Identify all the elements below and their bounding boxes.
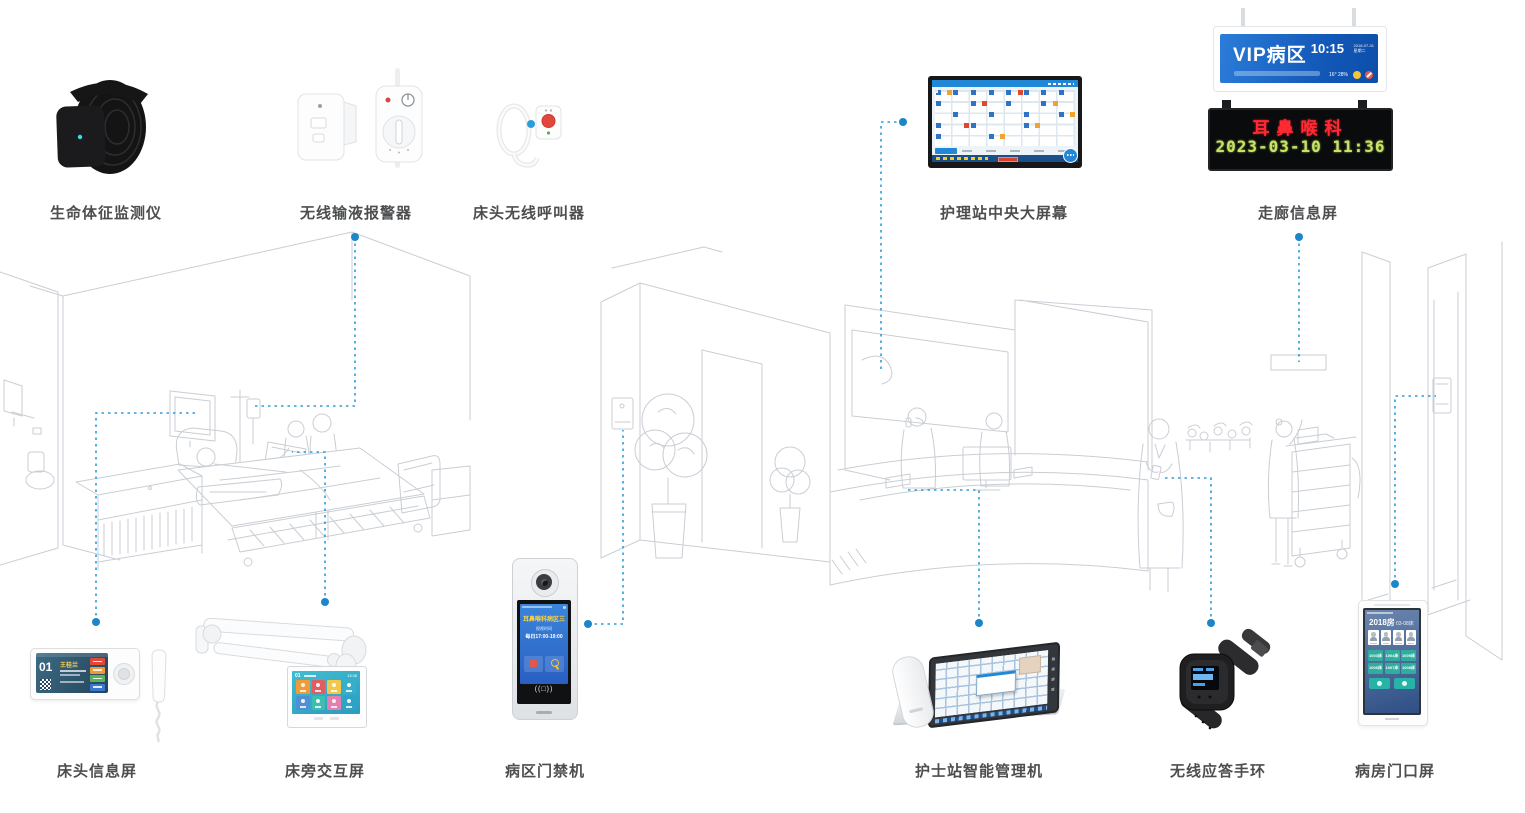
vip-sign-subtitle-bar (1234, 71, 1320, 76)
visitor-button (1394, 678, 1415, 689)
console-screen (935, 650, 1048, 717)
call-tile-blue (90, 684, 105, 691)
humidity-value: 28 (1338, 72, 1344, 78)
app-tile-education (312, 696, 326, 710)
door-screen-buttons (1368, 678, 1416, 689)
bed-range: 03-08床 (1396, 620, 1414, 627)
bedside-info-display: 01 王桂兰 (36, 653, 108, 693)
staff-photo-row (1368, 630, 1416, 645)
visitor-register-tile (524, 656, 543, 672)
label-nurse-console: 护士站智能管理机 (849, 760, 1109, 781)
bed-card-badges (935, 90, 938, 93)
gear-icon (563, 606, 566, 609)
temperature-value: 16 (1329, 72, 1335, 78)
unlock-tile (545, 656, 564, 672)
led-datetime-text: 2023-03-10 11:36 (1210, 137, 1391, 156)
wristband-device (1177, 626, 1272, 731)
card-slot (536, 711, 552, 714)
statusbar-ticker (936, 157, 988, 160)
console-popup (976, 670, 1016, 696)
label-bedside-caller: 床头无线呼叫器 (399, 202, 659, 223)
bezel-button (314, 717, 323, 720)
ellipsis-icon (1067, 154, 1074, 156)
app-tile-grid (296, 680, 356, 710)
call-tile-orange (90, 667, 105, 674)
bed-tile: 1008床 (1401, 663, 1416, 674)
no-smoking-icon (1365, 71, 1373, 79)
patient-name: 王桂兰 (60, 660, 78, 669)
app-tile-phone (343, 680, 357, 694)
info-line (60, 674, 80, 676)
door-screen-topbar (1367, 612, 1393, 614)
door-screen-display: 2018房 03-08床 1003床 1004床 1005床 1006床 100… (1365, 610, 1419, 713)
call-tile-green (90, 675, 105, 682)
bed-tile: 1003床 (1368, 650, 1383, 661)
bedside-handset (152, 650, 166, 742)
monitor-led (78, 135, 82, 139)
bezel-button (330, 717, 339, 720)
smiley-icon (1353, 71, 1361, 79)
interactive-name-bar (304, 675, 316, 677)
vip-sign-time: 10:15 (1311, 41, 1344, 56)
call-button (542, 115, 555, 128)
staff-photo (1381, 630, 1392, 645)
camera-button (1369, 678, 1390, 689)
staff-photo (1393, 630, 1404, 645)
access-ward-title: 耳鼻喉科病区三 (520, 614, 568, 623)
caller-cord-plug (527, 120, 535, 128)
app-tile-orders (296, 680, 310, 694)
info-line (60, 670, 86, 672)
hospital-iot-diagram: VIP病区 10:15 2018-07-31 星期二 16° 28% 耳鼻喉科 … (0, 0, 1525, 813)
corridor-led-device: 耳鼻喉科 2023-03-10 11:36 (1208, 108, 1393, 171)
bed-tile-grid: 1003床 1004床 1005床 1006床 1007床 1008床 (1368, 650, 1416, 674)
interactive-time: 13:36 (347, 673, 357, 678)
bed-number: 01 (39, 660, 52, 674)
app-tile-media (296, 696, 310, 710)
access-topbar (522, 606, 552, 608)
header-text-dashes (1048, 83, 1074, 85)
vip-sign-date: 2018-07-31 星期二 (1354, 43, 1374, 53)
visit-time-label: 探视时间 (520, 626, 568, 632)
more-button (1063, 148, 1078, 163)
door-screen-logo (1385, 718, 1399, 720)
bedside-info-knob (113, 663, 135, 685)
label-ward-access: 病区门禁机 (415, 760, 675, 781)
central-screen-header (932, 80, 1078, 87)
access-screen: 耳鼻喉科病区三 探视时间 每日17:00-19:00 (520, 604, 568, 684)
label-vital-monitor: 生命体征监测仪 (0, 202, 236, 223)
bed-card-grid (935, 90, 1075, 146)
vital-monitor-device (56, 80, 148, 174)
inactive-tabs (962, 150, 1072, 152)
active-tab (935, 148, 957, 154)
bedside-caller-device (499, 106, 561, 165)
label-central-screen: 护理站中央大屏幕 (874, 202, 1134, 223)
app-tile-settings (343, 696, 357, 710)
interactive-bed-number: 01 (295, 673, 301, 679)
staff-photo (1368, 630, 1379, 645)
qr-code (40, 679, 51, 690)
app-tile-vitals (312, 680, 326, 694)
label-door-screen: 病房门口屏 (1265, 760, 1525, 781)
bed-tile: 1006床 (1368, 663, 1383, 674)
bedside-info-topbar (36, 653, 108, 657)
access-camera (531, 569, 559, 597)
staff-photo (1406, 630, 1417, 645)
console-video-tile (1019, 655, 1041, 675)
vip-sign-climate: 16° 28% (1329, 72, 1348, 78)
bed-tile: 1005床 (1401, 650, 1416, 661)
vip-weekday-line: 星期二 (1354, 48, 1366, 53)
visit-time-value: 每日17:00-19:00 (520, 633, 568, 640)
app-tile-bill (327, 680, 341, 694)
interactive-screen-display: 01 13:36 (292, 671, 360, 714)
vip-sign-screen: VIP病区 10:15 2018-07-31 星期二 16° 28% (1220, 34, 1378, 83)
info-line (60, 681, 84, 683)
bed-tile: 1004床 (1385, 650, 1400, 661)
label-corridor-screen: 走廊信息屏 (1168, 202, 1428, 223)
app-tile-meals (327, 696, 341, 710)
bed-tile: 1007床 (1385, 663, 1400, 674)
door-screen-speaker (1374, 604, 1410, 606)
vip-sign-title: VIP病区 (1233, 40, 1307, 67)
console-indicator-lights (1051, 656, 1055, 691)
nfc-symbol: ((□)) (517, 686, 571, 693)
room-number: 2018房 (1369, 617, 1395, 628)
label-bedside-info: 床头信息屏 (0, 760, 227, 781)
infusion-alarm-device (298, 68, 422, 168)
led-department-text: 耳鼻喉科 (1210, 114, 1391, 139)
statusbar-alert (998, 157, 1018, 162)
call-tile-red (90, 658, 105, 665)
